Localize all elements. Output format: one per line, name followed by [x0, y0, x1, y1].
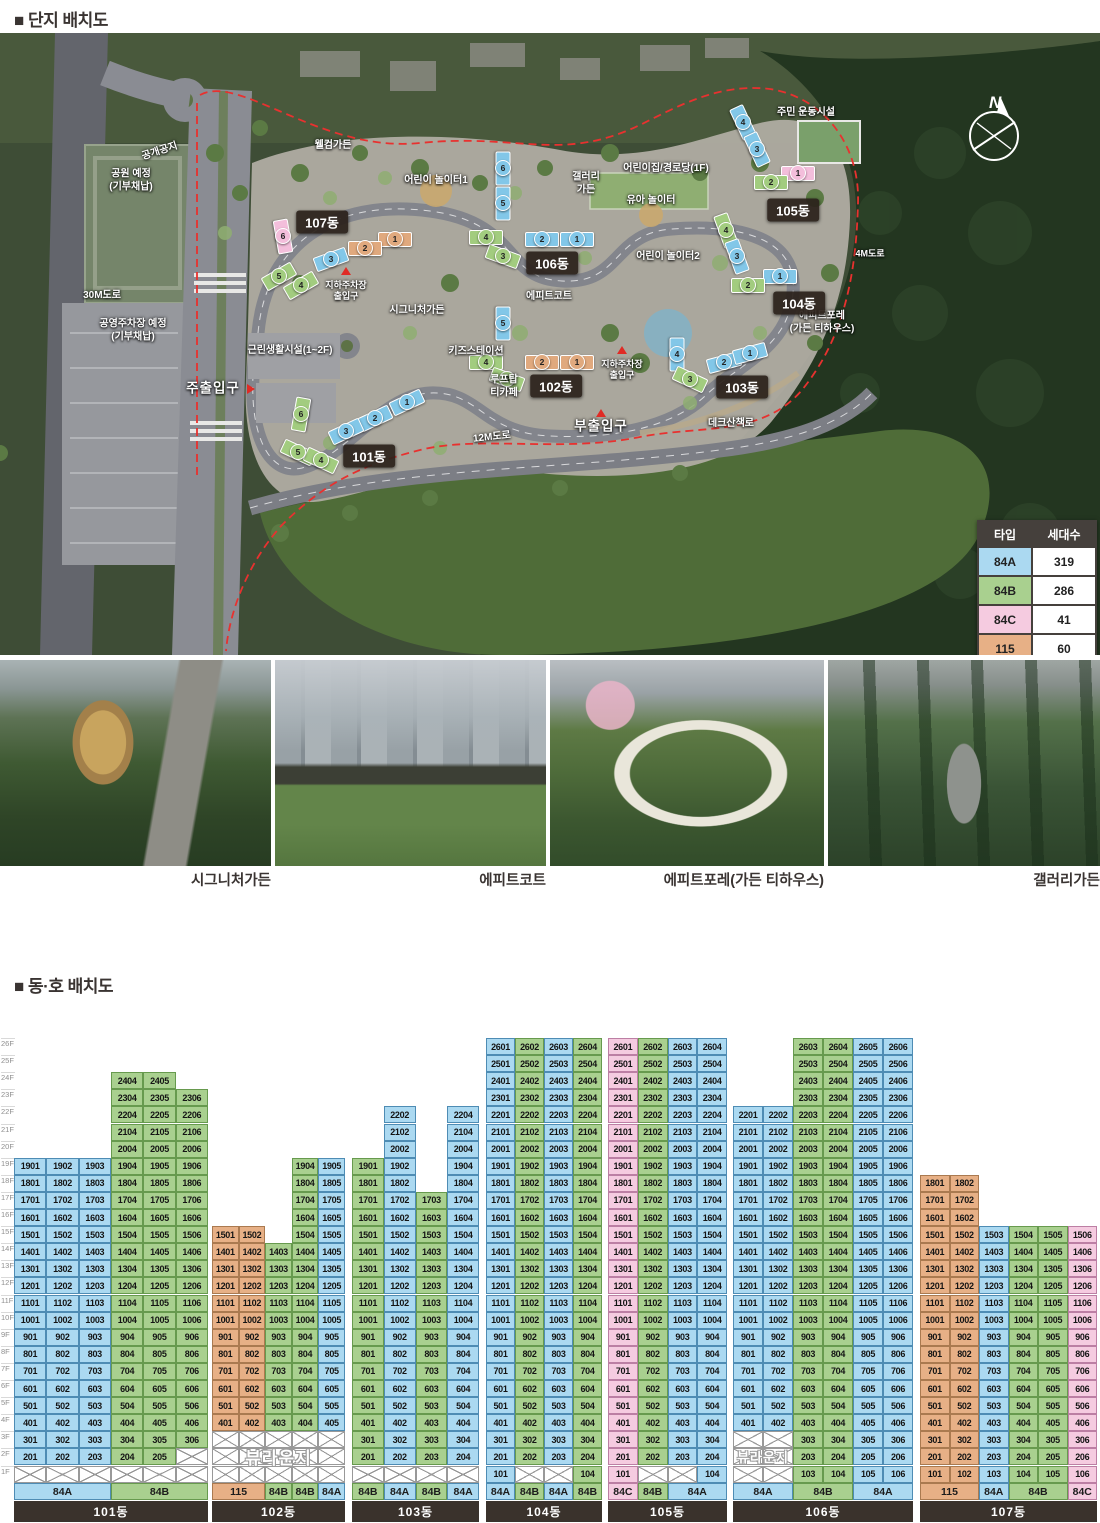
unit-cell: 504: [823, 1397, 853, 1414]
floor-label: 7F: [1, 1363, 15, 1381]
unit-cell: 1105: [1038, 1295, 1068, 1312]
unit-cell: 1002: [239, 1312, 266, 1329]
unit-cell: 1505: [1038, 1226, 1068, 1243]
empty-cell: [638, 1466, 668, 1483]
unit-cell: 202: [515, 1448, 544, 1465]
unit-cell: 2201: [486, 1106, 515, 1123]
unit-cell: 1501: [486, 1226, 515, 1243]
unit-cell: 1704: [292, 1192, 319, 1209]
unit-cell: 1102: [239, 1295, 266, 1312]
unit-cell: 702: [515, 1363, 544, 1380]
legend-row: 84C41: [978, 605, 1096, 634]
unit-cell: 1002: [384, 1312, 416, 1329]
unit-cell: 1403: [416, 1243, 448, 1260]
unit-cell: 2406: [883, 1072, 913, 1089]
floor-label: 12F: [1, 1277, 15, 1295]
unit-cell: 1004: [697, 1312, 727, 1329]
legend-row: 11560: [978, 634, 1096, 655]
unit-cell: 701: [608, 1363, 638, 1380]
unit-cell: 902: [239, 1329, 266, 1346]
unit-cell: 1303: [668, 1260, 698, 1277]
unit-cell: 1106: [176, 1295, 208, 1312]
floor-label: 26F: [1, 1038, 15, 1056]
unit-cell: 1805: [143, 1175, 175, 1192]
unit-cell: 1101: [608, 1295, 638, 1312]
unit-cell: 2504: [697, 1055, 727, 1072]
unit-cell: 401: [486, 1414, 515, 1431]
unit-cell: 1401: [352, 1243, 384, 1260]
unit-cell: 1704: [697, 1192, 727, 1209]
unit-cell: 1601: [733, 1209, 763, 1226]
unit-cell: 1204: [697, 1277, 727, 1294]
unit-cell: 1803: [793, 1175, 823, 1192]
photo-epit-foret: [550, 660, 824, 866]
unit-cell: 1903: [668, 1158, 698, 1175]
legend-col-type: 타입: [978, 521, 1032, 547]
unit-cell: 1504: [823, 1226, 853, 1243]
unit-cell: 1505: [853, 1226, 883, 1243]
unit-cell: 602: [239, 1380, 266, 1397]
floor-label: 2F: [1, 1448, 15, 1466]
unit-cell: 304: [111, 1431, 143, 1448]
unit-cell: 1304: [292, 1260, 319, 1277]
unit-cell: 303: [668, 1431, 698, 1448]
unit-cell: 104: [823, 1466, 853, 1483]
unit-cell: 2601: [608, 1038, 638, 1055]
unit-cell: 2604: [573, 1038, 602, 1055]
unit-cell: 1106: [1068, 1295, 1098, 1312]
unit-cell: 605: [318, 1380, 345, 1397]
unit-cell: 202: [384, 1448, 416, 1465]
unit-cell: 1101: [733, 1295, 763, 1312]
footer-type-cell: 84B: [515, 1483, 544, 1500]
unit-cell: 1301: [14, 1260, 46, 1277]
unit-cell: 1604: [111, 1209, 143, 1226]
unit-cell: 1204: [292, 1277, 319, 1294]
floor-label: 5F: [1, 1397, 15, 1415]
unit-cell: 1001: [486, 1312, 515, 1329]
photo-gallery-garden: [828, 660, 1100, 866]
unit-cell: 805: [853, 1346, 883, 1363]
unit-cell: 1202: [638, 1277, 668, 1294]
unit-cell: 2503: [544, 1055, 573, 1072]
unit-cell: 301: [14, 1431, 46, 1448]
unit-cell: 1604: [447, 1209, 479, 1226]
unit-cell: 301: [352, 1431, 384, 1448]
unit-cell: 1005: [853, 1312, 883, 1329]
unit-cell: 1006: [883, 1312, 913, 1329]
unit-cell: 604: [111, 1380, 143, 1397]
unit-cell: 1202: [46, 1277, 78, 1294]
unit-number-badge: 2: [740, 277, 756, 293]
unit-cell: 601: [486, 1380, 515, 1397]
unit-cell: 1206: [1068, 1277, 1098, 1294]
unit-cell: 2404: [697, 1072, 727, 1089]
unit-cell: 201: [352, 1448, 384, 1465]
unit-cell: 1103: [979, 1295, 1009, 1312]
unit-cell: 1301: [212, 1260, 239, 1277]
unit-cell: 2502: [638, 1055, 668, 1072]
unit-cell: 406: [883, 1414, 913, 1431]
unit-cell: 1601: [352, 1209, 384, 1226]
unit-cell: 2204: [111, 1106, 143, 1123]
unit-cell: 2405: [143, 1072, 175, 1089]
footer-type-cell: 84C: [1068, 1483, 1098, 1500]
unit-cell: 501: [733, 1397, 763, 1414]
unit-cell: 1404: [823, 1243, 853, 1260]
unit-cell: 1106: [883, 1295, 913, 1312]
unit-cell: 905: [1038, 1329, 1068, 1346]
unit-cell: 205: [143, 1448, 175, 1465]
unit-cell: 803: [265, 1346, 292, 1363]
unit-cell: 1401: [212, 1243, 239, 1260]
unit-cell: 702: [638, 1363, 668, 1380]
unit-cell: 403: [265, 1414, 292, 1431]
unit-cell: 601: [608, 1380, 638, 1397]
empty-cell: [515, 1466, 544, 1483]
empty-cell: [447, 1466, 479, 1483]
unit-cell: 1501: [733, 1226, 763, 1243]
floor-label: 18F: [1, 1175, 15, 1193]
unit-cell: 402: [515, 1414, 544, 1431]
unit-cell: 504: [111, 1397, 143, 1414]
unit-cell: 502: [950, 1397, 980, 1414]
unit-cell: 1104: [447, 1295, 479, 1312]
unit-cell: 2506: [883, 1055, 913, 1072]
unit-cell: 1602: [384, 1209, 416, 1226]
unit-cell: 1804: [111, 1175, 143, 1192]
unit-cell: 501: [608, 1397, 638, 1414]
unit-cell: 1304: [823, 1260, 853, 1277]
unit-cell: 2104: [111, 1124, 143, 1141]
building-chip-105동: 105동: [767, 199, 819, 222]
unit-cell: 703: [979, 1363, 1009, 1380]
unit-cell: 1801: [920, 1175, 950, 1192]
legend-type-cell: 84B: [978, 576, 1032, 605]
unit-cell: 1304: [447, 1260, 479, 1277]
unit-cell: 304: [447, 1431, 479, 1448]
unit-cell: 505: [1038, 1397, 1068, 1414]
unit-cell: 1405: [143, 1243, 175, 1260]
unit-cell: 403: [544, 1414, 573, 1431]
unit-cell: 1203: [265, 1277, 292, 1294]
unit-cell: 2002: [763, 1141, 793, 1158]
building-name-cell: 106동: [733, 1501, 913, 1522]
unit-cell: 805: [318, 1346, 345, 1363]
building-chip-102동: 102동: [530, 375, 582, 398]
unit-cell: 1703: [668, 1192, 698, 1209]
unit-cell: 2106: [176, 1124, 208, 1141]
unit-cell: 904: [823, 1329, 853, 1346]
unit-cell: 2101: [733, 1124, 763, 1141]
unit-cell: 1603: [793, 1209, 823, 1226]
unit-cell: 2203: [668, 1106, 698, 1123]
unit-cell: 505: [143, 1397, 175, 1414]
unit-cell: 1004: [111, 1312, 143, 1329]
unit-cell: 2001: [486, 1141, 515, 1158]
unit-cell: 104: [1009, 1466, 1039, 1483]
unit-cell: 2003: [544, 1141, 573, 1158]
unit-cell: 1005: [318, 1312, 345, 1329]
footer-type-cell: 84B: [265, 1483, 292, 1500]
floor-label: 4F: [1, 1414, 15, 1432]
legend-count-cell: 60: [1032, 634, 1096, 655]
unit-cell: 605: [853, 1380, 883, 1397]
floor-label: 20F: [1, 1141, 15, 1159]
unit-cell: 801: [486, 1346, 515, 1363]
unit-cell: 2606: [883, 1038, 913, 1055]
unit-cell: 2202: [384, 1106, 416, 1123]
unit-cell: 103: [793, 1466, 823, 1483]
legend-count-cell: 319: [1032, 547, 1096, 576]
unit-cell: 603: [265, 1380, 292, 1397]
unit-cell: 305: [853, 1431, 883, 1448]
unit-cell: 702: [239, 1363, 266, 1380]
unit-cell: 402: [638, 1414, 668, 1431]
unit-cell: 803: [979, 1346, 1009, 1363]
unit-cell: 2103: [544, 1124, 573, 1141]
unit-cell: 1403: [79, 1243, 111, 1260]
unit-cell: 1306: [176, 1260, 208, 1277]
unit-cell: 1003: [979, 1312, 1009, 1329]
unit-cell: 1703: [544, 1192, 573, 1209]
unit-cell: 2602: [515, 1038, 544, 1055]
unit-cell: 1001: [14, 1312, 46, 1329]
footer-type-cell: 84B: [292, 1483, 319, 1500]
unit-cell: 1506: [176, 1226, 208, 1243]
unit-cell: 506: [1068, 1397, 1098, 1414]
unit-cell: 1702: [638, 1192, 668, 1209]
unit-cell: 1702: [515, 1192, 544, 1209]
unit-cell: 1604: [823, 1209, 853, 1226]
unit-cell: 1503: [79, 1226, 111, 1243]
building-name-cell: 102동: [212, 1501, 345, 1522]
unit-cell: 505: [318, 1397, 345, 1414]
unit-cell: 102: [950, 1466, 980, 1483]
unit-cell: 703: [668, 1363, 698, 1380]
unit-cell: 1804: [573, 1175, 602, 1192]
unit-cell: 1802: [638, 1175, 668, 1192]
unit-cell: 1002: [515, 1312, 544, 1329]
unit-cell: 801: [920, 1346, 950, 1363]
unit-cell: 1205: [143, 1277, 175, 1294]
unit-cell: 606: [176, 1380, 208, 1397]
unit-cell: 703: [544, 1363, 573, 1380]
unit-cell: 2106: [883, 1124, 913, 1141]
unit-cell: 1904: [447, 1158, 479, 1175]
unit-cell: 1405: [1038, 1243, 1068, 1260]
unit-cell: 801: [352, 1346, 384, 1363]
brochure-page: ■ 단지 배치도: [0, 0, 1100, 1523]
unit-cell: 101: [920, 1466, 950, 1483]
unit-cell: 1505: [143, 1226, 175, 1243]
unit-cell: 1304: [111, 1260, 143, 1277]
unit-cell: 205: [1038, 1448, 1068, 1465]
unit-cell: 402: [384, 1414, 416, 1431]
unit-cell: 404: [447, 1414, 479, 1431]
unit-cell: 601: [352, 1380, 384, 1397]
unit-cell: 1401: [608, 1243, 638, 1260]
unit-cell: 606: [883, 1380, 913, 1397]
unit-cell: 1502: [46, 1226, 78, 1243]
unit-number-badge: 4: [313, 452, 329, 468]
unit-cell: 2405: [853, 1072, 883, 1089]
unit-cell: 1603: [79, 1209, 111, 1226]
unit-cell: 1403: [979, 1243, 1009, 1260]
unit-cell: 1802: [763, 1175, 793, 1192]
unit-cell: 202: [46, 1448, 78, 1465]
legend-type-cell: 84C: [978, 605, 1032, 634]
unit-cell: 804: [823, 1346, 853, 1363]
unit-cell: 406: [1068, 1414, 1098, 1431]
unit-cell: 2201: [608, 1106, 638, 1123]
unit-cell: 203: [416, 1448, 448, 1465]
unit-cell: 301: [486, 1431, 515, 1448]
empty-cell: [176, 1466, 208, 1483]
unit-number-badge: 5: [290, 444, 306, 460]
unit-cell: 1202: [384, 1277, 416, 1294]
unit-cell: 1802: [384, 1175, 416, 1192]
unit-cell: 903: [265, 1329, 292, 1346]
unit-cell: 706: [176, 1363, 208, 1380]
legend-count-cell: 41: [1032, 605, 1096, 634]
unit-cell: 804: [697, 1346, 727, 1363]
unit-cell: 1401: [733, 1243, 763, 1260]
unit-cell: 1201: [486, 1277, 515, 1294]
unit-number-badge: 6: [495, 160, 511, 176]
unit-cell: 1901: [733, 1158, 763, 1175]
photo-epit-court: [275, 660, 546, 866]
unit-cell: 1304: [1009, 1260, 1039, 1277]
unit-cell: 303: [79, 1431, 111, 1448]
unit-cell: 1304: [573, 1260, 602, 1277]
footer-type-cell: 84A: [447, 1483, 479, 1500]
legend-row: 84B286: [978, 576, 1096, 605]
unit-cell: 401: [14, 1414, 46, 1431]
footer-type-cell: 84B: [111, 1483, 208, 1500]
floor-label: 6F: [1, 1380, 15, 1398]
footer-type-cell: 84A: [318, 1483, 345, 1500]
unit-cell: 604: [573, 1380, 602, 1397]
unit-cell: 2404: [573, 1072, 602, 1089]
unit-cell: 702: [46, 1363, 78, 1380]
unit-cell: 501: [14, 1397, 46, 1414]
unit-cell: 1602: [46, 1209, 78, 1226]
unit-cell: 204: [447, 1448, 479, 1465]
unit-cell: 1003: [265, 1312, 292, 1329]
unit-cell: 1604: [573, 1209, 602, 1226]
unit-cell: 1905: [318, 1158, 345, 1175]
unit-cell: 1203: [979, 1277, 1009, 1294]
unit-cell: 1104: [292, 1295, 319, 1312]
unit-cell: 401: [212, 1414, 239, 1431]
unit-cell: 1204: [111, 1277, 143, 1294]
unit-cell: 1902: [763, 1158, 793, 1175]
unit-cell: 706: [883, 1363, 913, 1380]
unit-cell: 1404: [447, 1243, 479, 1260]
unit-cell: 2002: [515, 1141, 544, 1158]
unit-cell: 1202: [515, 1277, 544, 1294]
unit-cell: 904: [447, 1329, 479, 1346]
unit-cell: 2102: [763, 1124, 793, 1141]
unit-cell: 1102: [46, 1295, 78, 1312]
unit-cell: 602: [384, 1380, 416, 1397]
unit-cell: 2304: [823, 1089, 853, 1106]
unit-cell: 1102: [384, 1295, 416, 1312]
unit-cell: 2004: [823, 1141, 853, 1158]
unit-cell: 1902: [46, 1158, 78, 1175]
unit-cell: 1202: [950, 1277, 980, 1294]
unit-number-badge: 4: [478, 229, 494, 245]
unit-cell: 2006: [176, 1141, 208, 1158]
lounge-label: 뷰라운지: [733, 1431, 793, 1482]
unit-cell: 1605: [318, 1209, 345, 1226]
unit-cell: 1804: [292, 1175, 319, 1192]
unit-number-badge: 4: [735, 114, 751, 130]
unit-number-badge: 6: [293, 406, 309, 422]
unit-cell: 404: [1009, 1414, 1039, 1431]
unit-cell: 405: [1038, 1414, 1068, 1431]
unit-cell: 201: [14, 1448, 46, 1465]
unit-cell: 1103: [79, 1295, 111, 1312]
unit-cell: 1404: [292, 1243, 319, 1260]
unit-cell: 2001: [733, 1141, 763, 1158]
unit-cell: 1504: [573, 1226, 602, 1243]
unit-cell: 2203: [544, 1106, 573, 1123]
unit-cell: 1302: [638, 1260, 668, 1277]
unit-cell: 1305: [318, 1260, 345, 1277]
unit-cell: 1502: [638, 1226, 668, 1243]
unit-cell: 806: [176, 1346, 208, 1363]
building-name-cell: 103동: [352, 1501, 479, 1522]
unit-cell: 2504: [573, 1055, 602, 1072]
unit-cell: 903: [416, 1329, 448, 1346]
unit-cell: 2004: [697, 1141, 727, 1158]
unit-cell: 1004: [1009, 1312, 1039, 1329]
unit-cell: 303: [793, 1431, 823, 1448]
photo-caption: 에피트코트: [275, 869, 546, 891]
building-chip-107동: 107동: [296, 211, 348, 234]
unit-cell: 2603: [793, 1038, 823, 1055]
unit-cell: 701: [352, 1363, 384, 1380]
unit-cell: 1302: [384, 1260, 416, 1277]
unit-cell: 1503: [416, 1226, 448, 1243]
unit-cell: 1502: [763, 1226, 793, 1243]
unit-cell: 303: [979, 1431, 1009, 1448]
unit-cell: 702: [950, 1363, 980, 1380]
unit-number-badge: 2: [534, 354, 550, 370]
unit-cell: 1004: [292, 1312, 319, 1329]
unit-cell: 902: [638, 1329, 668, 1346]
unit-cell: 1506: [1068, 1226, 1098, 1243]
unit-cell: 902: [46, 1329, 78, 1346]
unit-cell: 1801: [14, 1175, 46, 1192]
unit-cell: 1803: [79, 1175, 111, 1192]
unit-cell: 401: [733, 1414, 763, 1431]
unit-cell: 504: [697, 1397, 727, 1414]
photo-signature-garden: [0, 660, 271, 866]
unit-cell: 402: [239, 1414, 266, 1431]
unit-cell: 603: [416, 1380, 448, 1397]
unit-cell: 1205: [853, 1277, 883, 1294]
unit-cell: 1303: [265, 1260, 292, 1277]
map-terrain: [0, 33, 1100, 655]
unit-cell: 1301: [920, 1260, 950, 1277]
unit-cell: 801: [608, 1346, 638, 1363]
unit-number-badge: 4: [669, 346, 685, 362]
unit-cell: 502: [239, 1397, 266, 1414]
empty-cell: [176, 1448, 208, 1465]
